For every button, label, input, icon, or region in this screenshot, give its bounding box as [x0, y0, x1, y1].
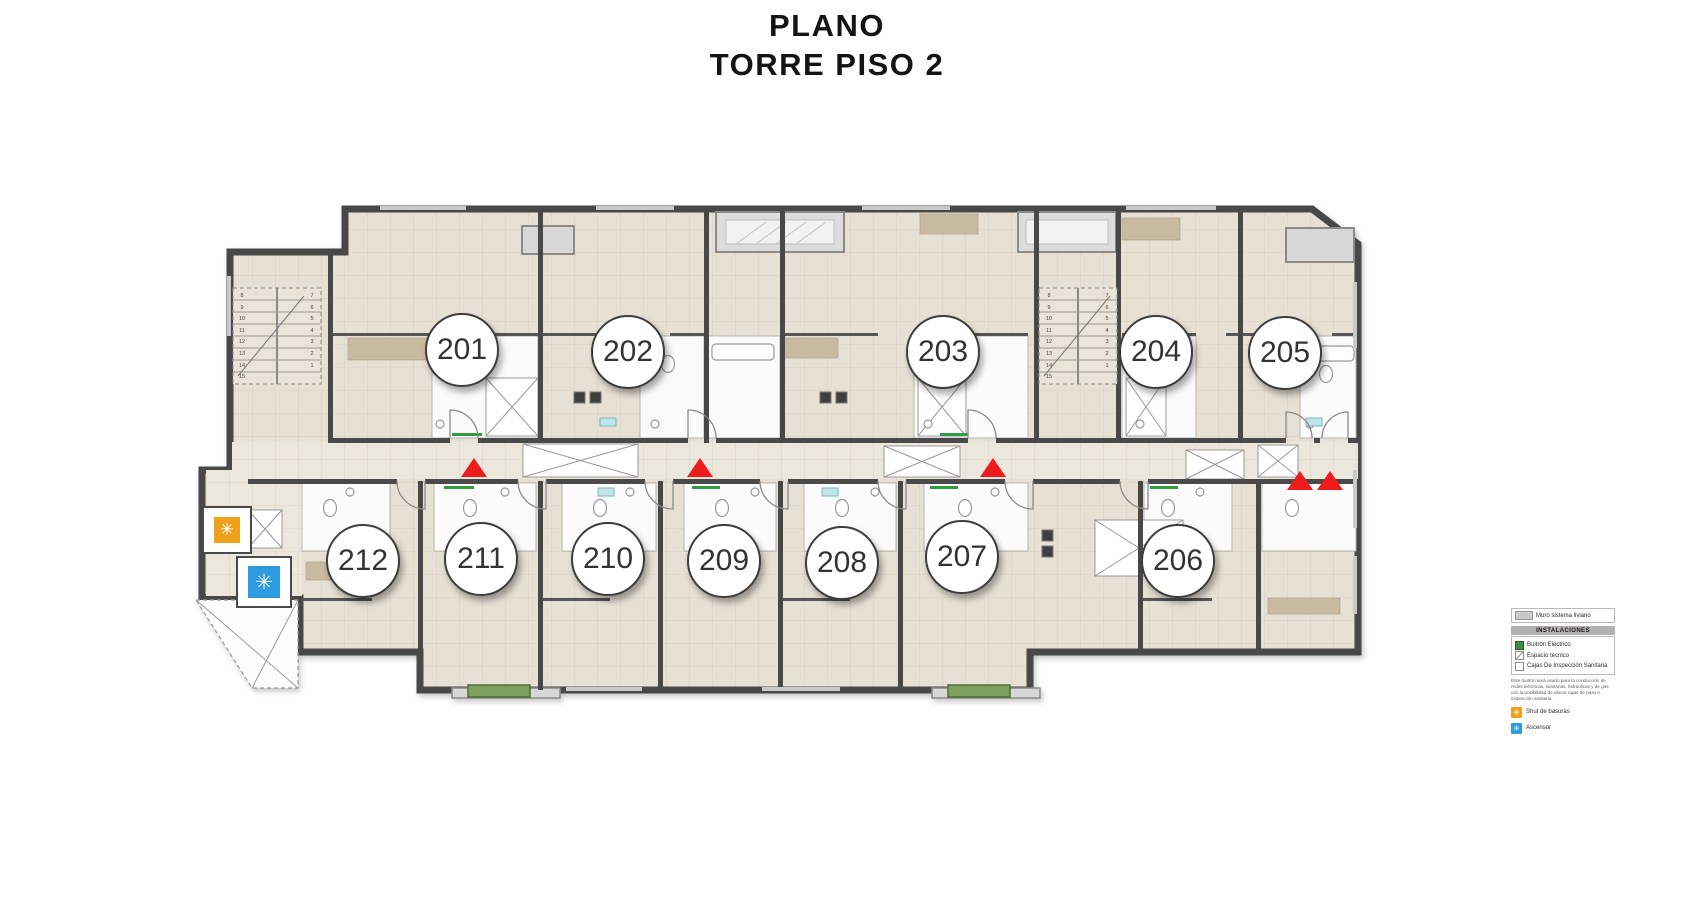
legend-header: INSTALACIONES [1511, 626, 1615, 635]
legend-item-label: Buitrón Eléctrico [1527, 642, 1571, 648]
white-swatch [1515, 662, 1524, 671]
trash-chute: ✳ [202, 506, 252, 554]
legend-item-espacio: Espacio técnico [1515, 651, 1611, 660]
unit-badge-207[interactable]: 207 [925, 520, 999, 594]
stairs-right-numbers-b: 7 6 5 4 3 2 1 [1099, 291, 1115, 372]
entrance-marker-icon [1287, 471, 1313, 490]
entrance-marker-icon [687, 458, 713, 477]
legend-wall-item: Muro sistema liviano [1511, 608, 1615, 623]
legend-wall-label: Muro sistema liviano [1536, 613, 1591, 619]
stairs-left-numbers-b: 7 6 5 4 3 2 1 [304, 291, 320, 372]
unit-number: 204 [1131, 335, 1181, 369]
unit-number: 201 [437, 333, 487, 367]
unit-number: 207 [937, 540, 987, 574]
unit-badge-208[interactable]: 208 [805, 526, 879, 600]
legend-icon-label: Ascensor [1526, 725, 1551, 731]
unit-badge-202[interactable]: 202 [591, 315, 665, 389]
legend-item-buitron: Buitrón Eléctrico [1515, 641, 1611, 650]
unit-number: 206 [1153, 544, 1203, 578]
wall-swatch [1515, 611, 1533, 620]
elevator-legend-icon: ✳ [1511, 723, 1522, 734]
hatch-swatch [1515, 651, 1524, 660]
unit-number: 209 [699, 544, 749, 578]
legend-trash-chute: ✳ Shut de basuras [1511, 707, 1615, 718]
legend-item-label: Cajas De Inspección Sanitaria [1527, 663, 1607, 669]
unit-number: 205 [1260, 336, 1310, 370]
legend-items: Buitrón Eléctrico Espacio técnico Cajas … [1511, 636, 1615, 675]
legend-icon-label: Shut de basuras [1526, 709, 1570, 715]
legend-item-cajas: Cajas De Inspección Sanitaria [1515, 662, 1611, 671]
green-swatch [1515, 641, 1524, 650]
stairs-left-numbers-a: 8 9 10 11 12 13 14 15 [234, 291, 250, 384]
legend-elevator: ✳ Ascensor [1511, 723, 1615, 734]
unit-badge-204[interactable]: 204 [1119, 315, 1193, 389]
elevator-icon: ✳ [248, 566, 280, 598]
unit-badge-211[interactable]: 211 [444, 522, 518, 596]
unit-badge-212[interactable]: 212 [326, 524, 400, 598]
stairs-right-numbers-a: 8 9 10 11 12 13 14 15 [1041, 291, 1057, 384]
unit-number: 210 [583, 542, 633, 576]
unit-badge-210[interactable]: 210 [571, 522, 645, 596]
unit-number: 203 [918, 335, 968, 369]
floor-plan-page: PLANO TORRE PISO 2 [0, 0, 1701, 900]
unit-number: 202 [603, 335, 653, 369]
unit-badge-206[interactable]: 206 [1141, 524, 1215, 598]
floor-plan-drawing [0, 0, 1701, 900]
legend: Muro sistema liviano INSTALACIONES Buitr… [1511, 608, 1615, 734]
trash-chute-legend-icon: ✳ [1511, 707, 1522, 718]
entrance-marker-icon [461, 458, 487, 477]
entrance-marker-icon [1317, 471, 1343, 490]
elevator: ✳ [236, 556, 292, 608]
unit-number: 208 [817, 546, 867, 580]
unit-badge-209[interactable]: 209 [687, 524, 761, 598]
trash-chute-icon: ✳ [214, 517, 240, 543]
entrance-marker-icon [980, 458, 1006, 477]
unit-badge-201[interactable]: 201 [425, 313, 499, 387]
unit-number: 212 [338, 544, 388, 578]
terrace-bottom-left [196, 600, 298, 688]
unit-badge-203[interactable]: 203 [906, 315, 980, 389]
legend-item-label: Espacio técnico [1527, 653, 1569, 659]
unit-badge-205[interactable]: 205 [1248, 316, 1322, 390]
unit-number: 211 [457, 542, 505, 576]
legend-note: Este buitrón será usado para la conducci… [1511, 678, 1615, 702]
